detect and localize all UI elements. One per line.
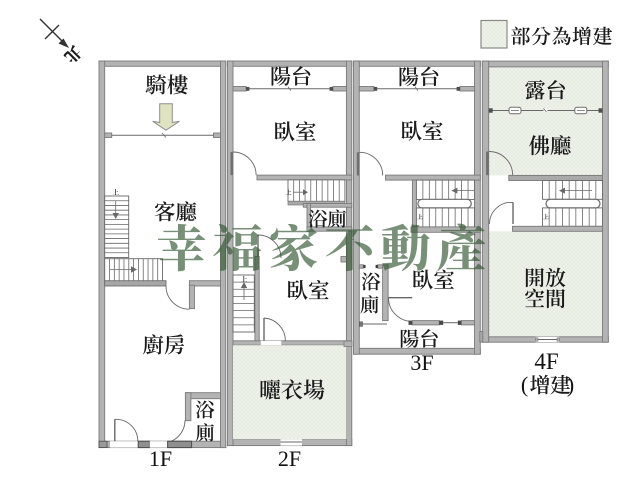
svg-text:4F: 4F	[534, 349, 558, 374]
svg-text:3F: 3F	[410, 350, 433, 375]
svg-text:2F: 2F	[278, 446, 301, 471]
svg-text:1F: 1F	[149, 446, 172, 471]
svg-text:(: (	[521, 372, 528, 397]
